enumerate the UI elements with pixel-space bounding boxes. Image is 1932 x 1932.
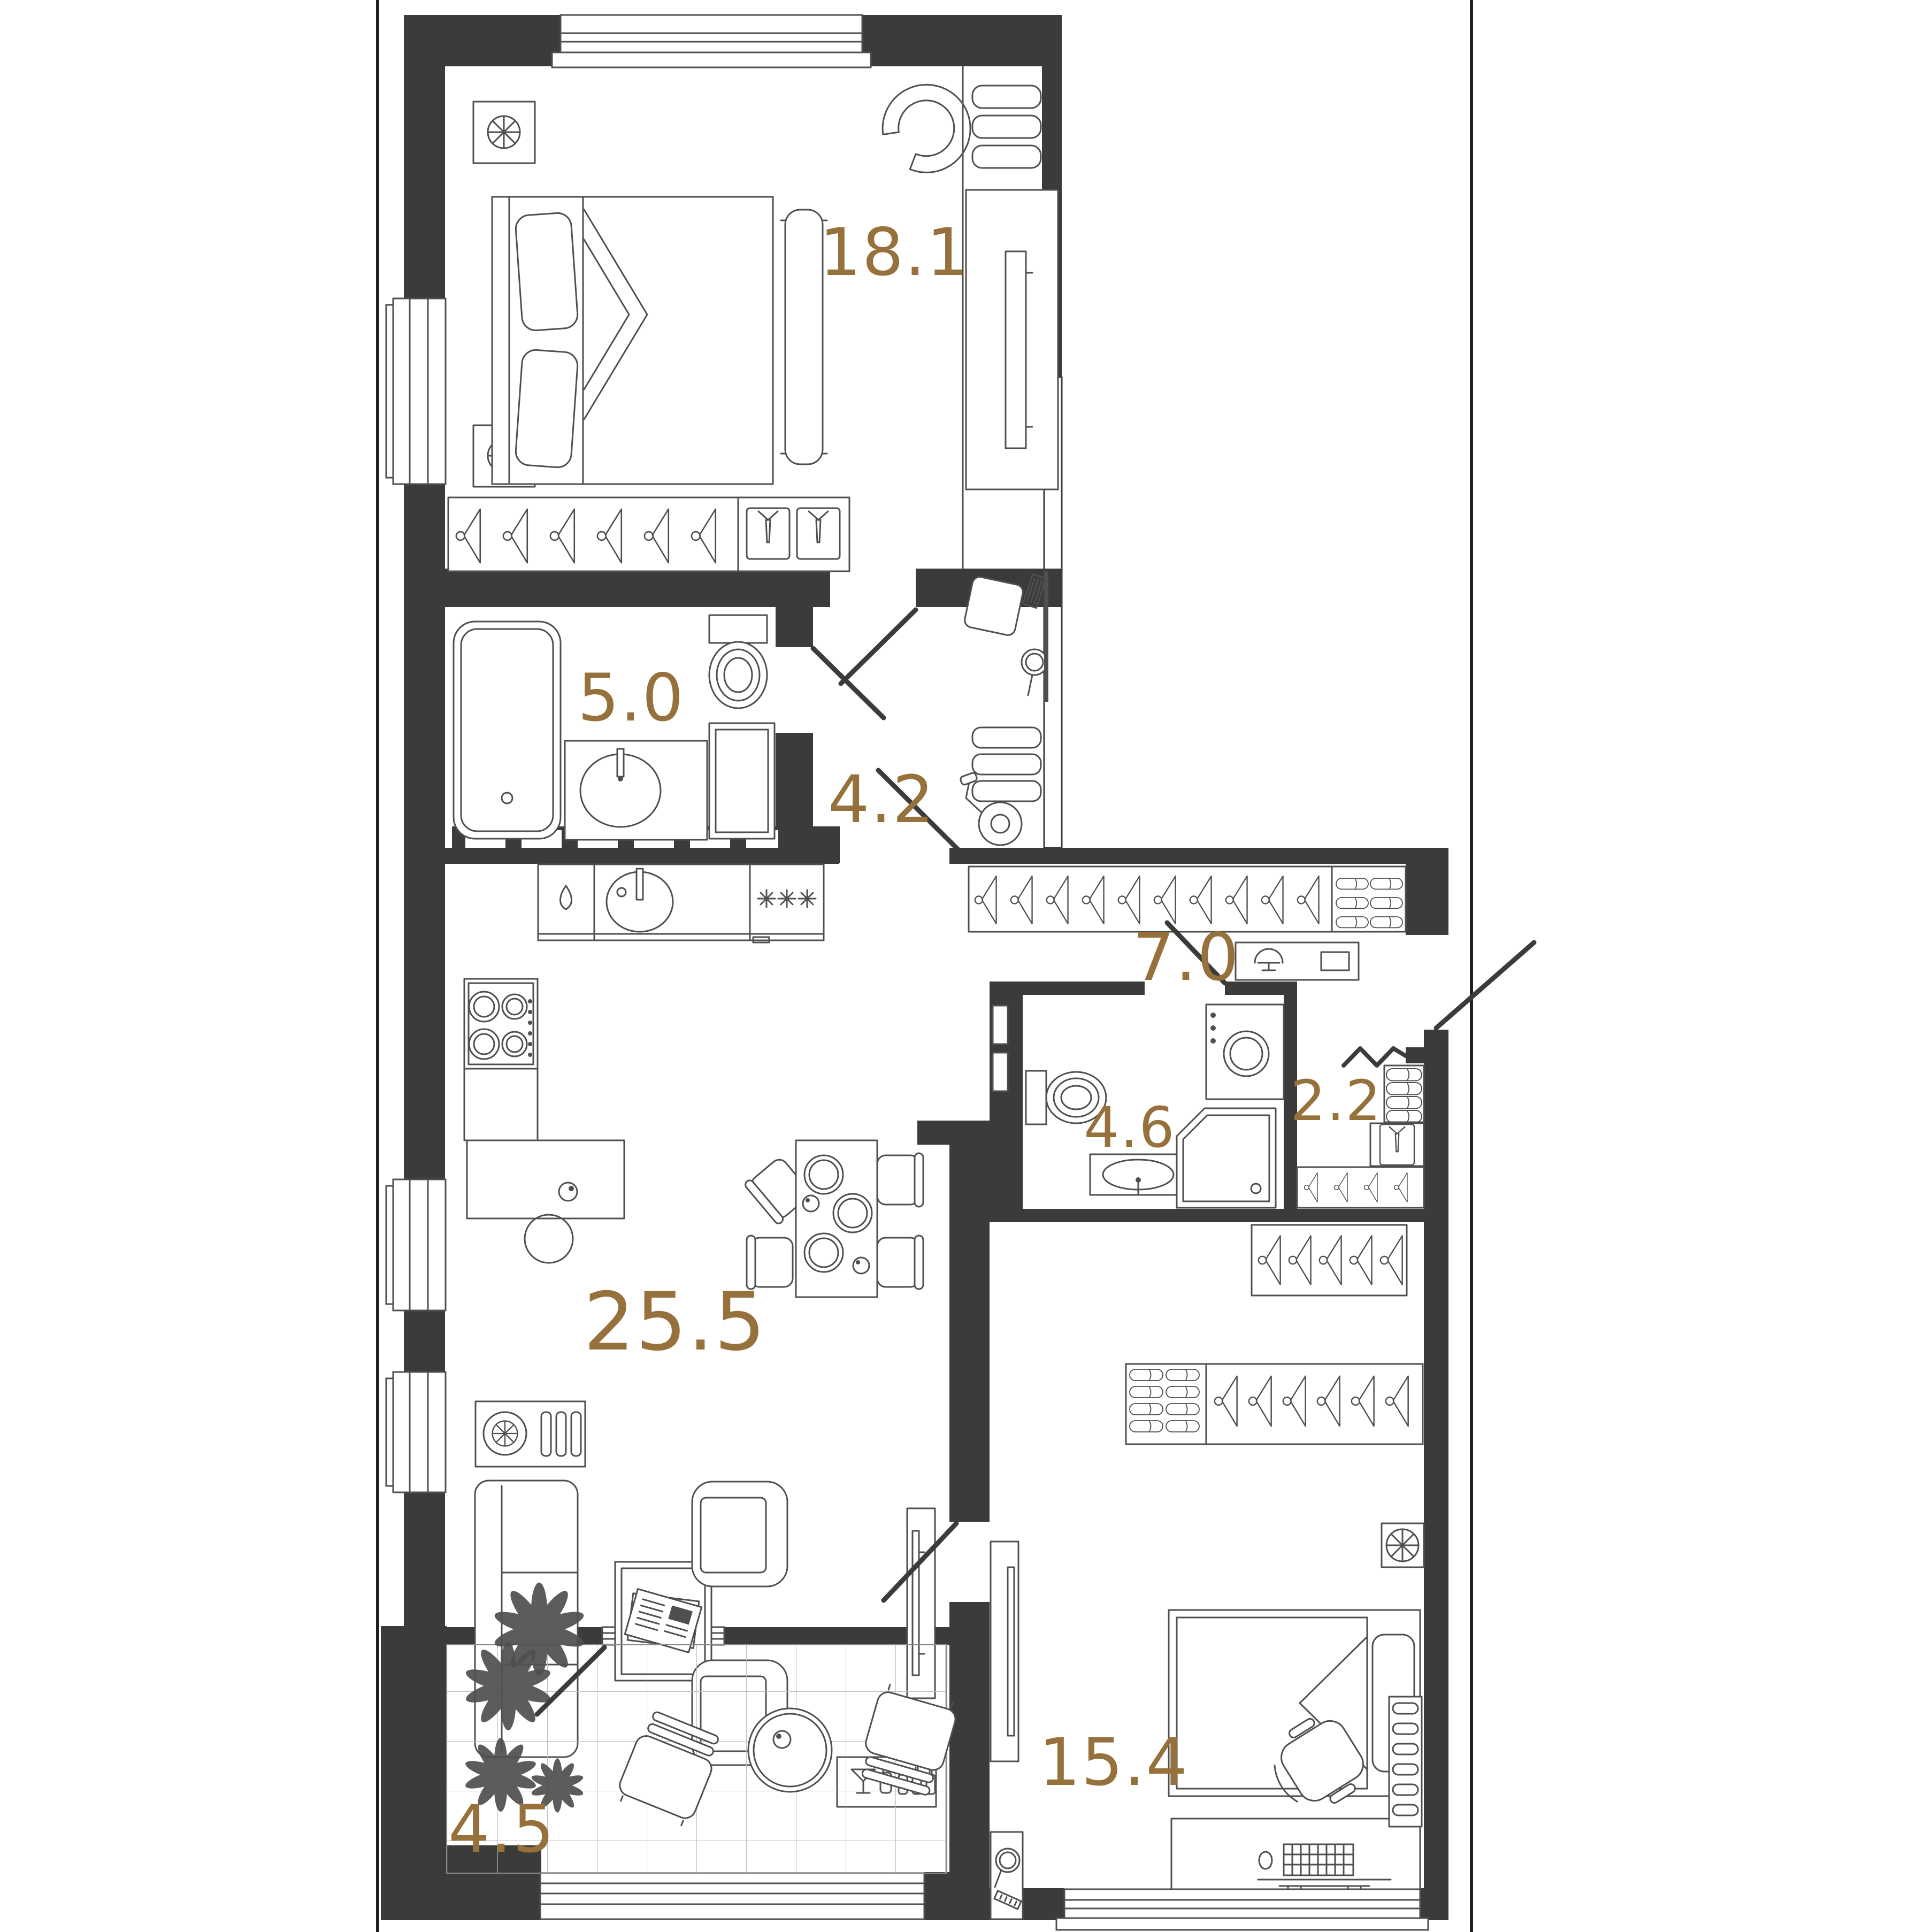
wardrobe-icon [1126, 1364, 1423, 1444]
kitchen-cabinet [464, 1069, 538, 1140]
room-label-corridor: 7.0 [1133, 919, 1240, 995]
window-balcony-front [540, 1873, 924, 1919]
corner-shower-icon [1177, 1108, 1276, 1208]
coat-rail-icon [1252, 1225, 1407, 1295]
window-bedroom2-bottom [1056, 1889, 1428, 1930]
sink-icon [1090, 1154, 1186, 1195]
entrance-door [1436, 942, 1534, 1028]
room-label-living-kitchen: 25.5 [584, 1276, 766, 1369]
mirror-panel-icon [1044, 571, 1048, 702]
electrical-panel-zigzag [1344, 1048, 1406, 1065]
kitchen-island-icon [467, 1140, 624, 1263]
towel-radiator-icon [993, 1053, 1008, 1091]
washing-machine-icon [1206, 1005, 1284, 1099]
slipper-shelf-icon [1384, 1065, 1424, 1122]
hallway-dressing [960, 571, 1048, 845]
dining-set [743, 1140, 923, 1297]
room-label-bedroom-main: 18.1 [819, 214, 969, 290]
tv-unit-bedroom-icon [991, 1542, 1018, 1761]
room-label-balcony: 4.5 [448, 1791, 555, 1867]
armchair-icon [692, 1482, 787, 1586]
window-bedroom-top [552, 15, 871, 67]
towel-ladder-icon [1389, 1697, 1422, 1827]
hob-icon [464, 979, 538, 1069]
desk-icon [1171, 1819, 1420, 1889]
room-label-hallway: 4.2 [828, 762, 935, 838]
bedroom-main [448, 66, 1058, 571]
floor-plan-canvas: 18.1 5.0 4.2 7.0 4.6 2.2 25.5 15.4 4.5 [0, 0, 1932, 1932]
bedroom-second [991, 1225, 1424, 1919]
balcony-table-icon [748, 1708, 832, 1792]
floor-plan-page: 18.1 5.0 4.2 7.0 4.6 2.2 25.5 15.4 4.5 [0, 0, 1932, 1932]
toilet-icon [709, 615, 767, 708]
double-bed-icon [492, 197, 773, 484]
bar-stool-icon [525, 1215, 573, 1263]
room-label-bathroom-main: 5.0 [578, 660, 685, 736]
door-hall-to-bathroom [813, 648, 884, 718]
nightstand-icon [473, 102, 535, 163]
window-living-left-2 [386, 1372, 446, 1492]
window-bedroom-left [386, 298, 446, 484]
wall-lamp-icon [1382, 1523, 1424, 1567]
closet-hanger-rail-icon [1297, 1167, 1424, 1208]
vanity-sink-icon [565, 741, 707, 840]
bathtub-icon [454, 622, 561, 839]
boiler-cabinet-icon [709, 723, 775, 839]
wardrobe-icon [448, 497, 849, 571]
page-frame-line-left [376, 0, 379, 1932]
towel-radiator-icon [993, 1006, 1008, 1044]
kitchen-counter [538, 864, 824, 942]
room-label-bedroom-second: 15.4 [1039, 1724, 1189, 1800]
stool-icon [963, 576, 1024, 637]
door-bedroom-to-hall [841, 610, 916, 684]
page-frame-line-right [1470, 0, 1473, 1932]
armchair-icon [870, 70, 986, 187]
room-label-bathroom-guest: 4.6 [1084, 1095, 1175, 1160]
dresser-icon [991, 1832, 1023, 1919]
room-label-closet: 2.2 [1290, 1068, 1382, 1133]
window-living-left-1 [386, 1179, 446, 1310]
console-table-icon [1236, 942, 1359, 980]
wine-cabinet-icon [476, 1401, 585, 1467]
